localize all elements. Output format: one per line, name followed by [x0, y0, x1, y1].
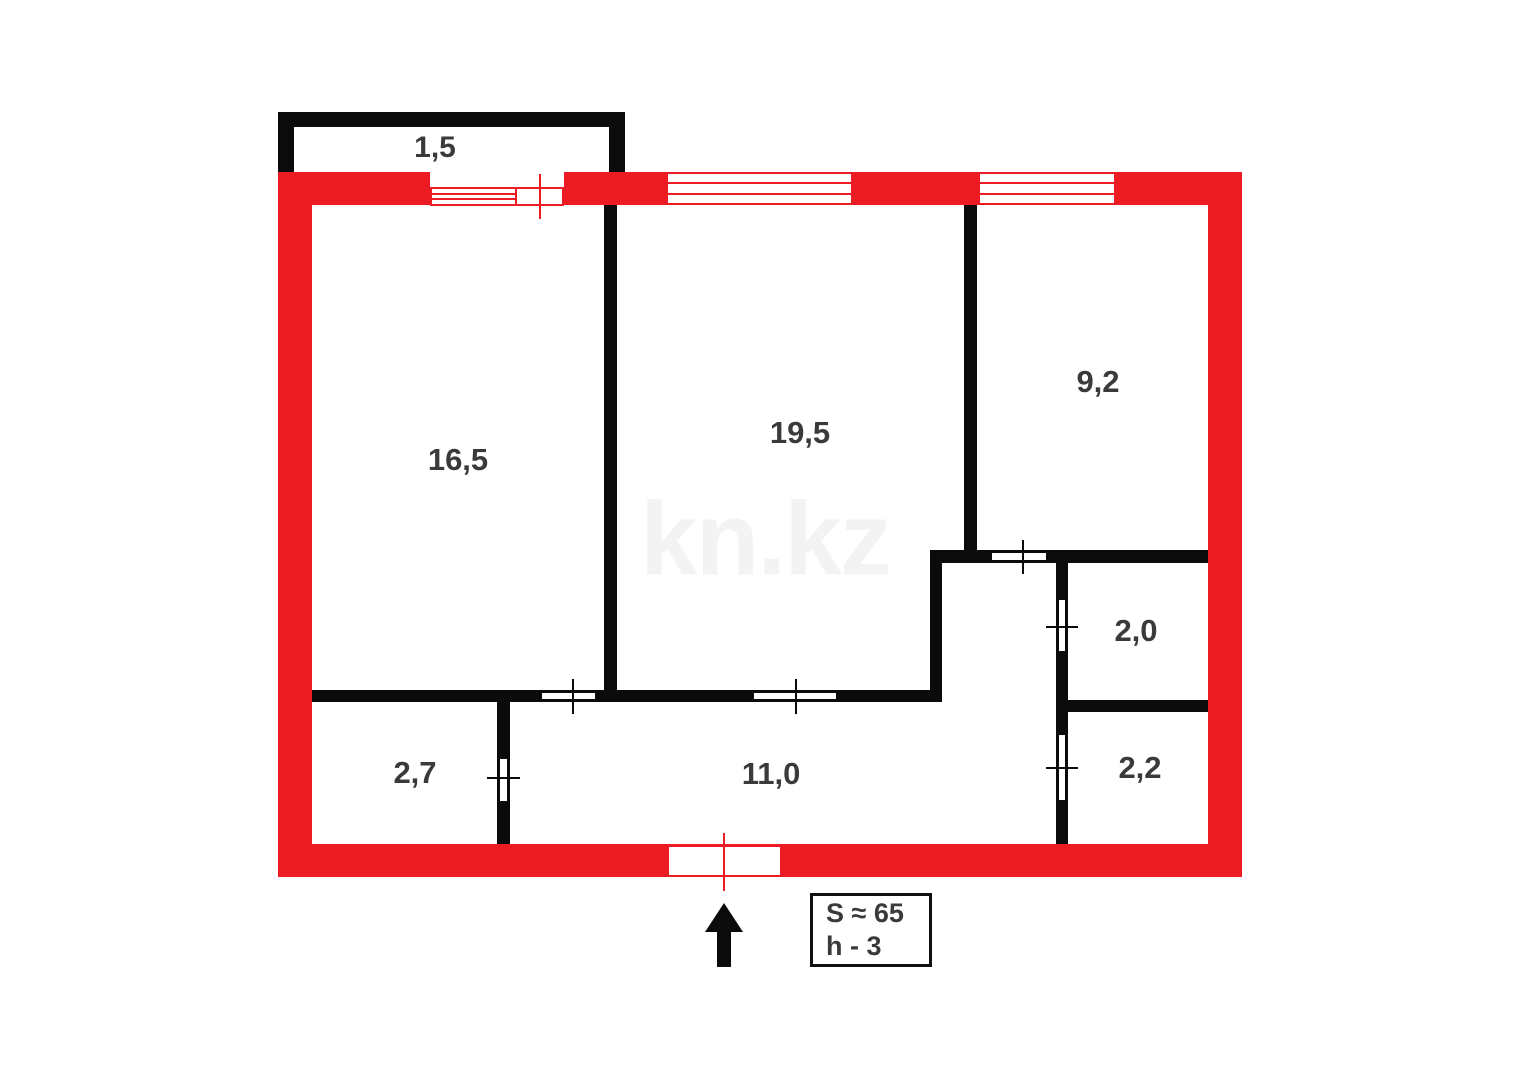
door-92-tick: [1022, 540, 1024, 574]
door-22-tick: [1046, 767, 1078, 769]
room-label-19-5: 19,5: [770, 415, 830, 451]
door-27: [498, 757, 509, 803]
balcony-wall-top: [278, 112, 625, 127]
window-right: [978, 172, 1116, 205]
room-label-balcony: 1,5: [414, 131, 456, 165]
door-16-tick: [572, 679, 574, 714]
wall-between-16-19: [604, 205, 617, 702]
window-pane-line: [668, 193, 851, 195]
wall-between-20-22: [1056, 700, 1208, 712]
wall-corridor-top: [312, 690, 942, 702]
window-pane-line: [432, 198, 515, 200]
room-label-16-5: 16,5: [428, 442, 488, 478]
outer-wall-right: [1208, 172, 1242, 877]
floor-plan-page: 1,5 16,5 19,5 9,2 2,0 2,2 2,7 11,0 kn.kz…: [0, 0, 1516, 1080]
wall-below-92: [930, 550, 1208, 563]
door-27-tick: [487, 777, 520, 779]
watermark: kn.kz: [640, 481, 890, 600]
window-mid: [666, 172, 853, 205]
balcony-wall-right: [609, 112, 625, 172]
window-pane-line: [980, 193, 1114, 195]
door-16-corridor: [540, 691, 597, 701]
room-label-2-0: 2,0: [1114, 613, 1157, 649]
room-label-2-7: 2,7: [393, 755, 436, 791]
room-label-2-2: 2,2: [1118, 750, 1161, 786]
info-height-line: h - 3: [826, 930, 929, 963]
info-box: S ≈ 65 h - 3: [810, 893, 932, 967]
info-area-line: S ≈ 65: [826, 897, 929, 930]
window-pane-line: [980, 182, 1114, 184]
wall-corridor-step: [930, 550, 942, 702]
room-label-9-2: 9,2: [1076, 364, 1119, 400]
outer-wall-left: [278, 172, 312, 877]
entrance-arrow-shaft: [717, 929, 731, 967]
balcony-door-tick: [539, 174, 541, 219]
door-19-tick: [795, 679, 797, 714]
door-20-tick: [1046, 626, 1078, 628]
window-balcony-sill: [430, 187, 517, 206]
door-92-corridor: [990, 551, 1048, 562]
balcony-opening-band: [430, 172, 564, 187]
window-pane-line: [432, 193, 515, 195]
entrance-arrow-icon: [705, 903, 743, 932]
entrance-door-tick: [723, 833, 725, 891]
wall-between-19-92: [964, 205, 977, 563]
room-label-11-0: 11,0: [742, 756, 801, 792]
window-pane-line: [668, 182, 851, 184]
